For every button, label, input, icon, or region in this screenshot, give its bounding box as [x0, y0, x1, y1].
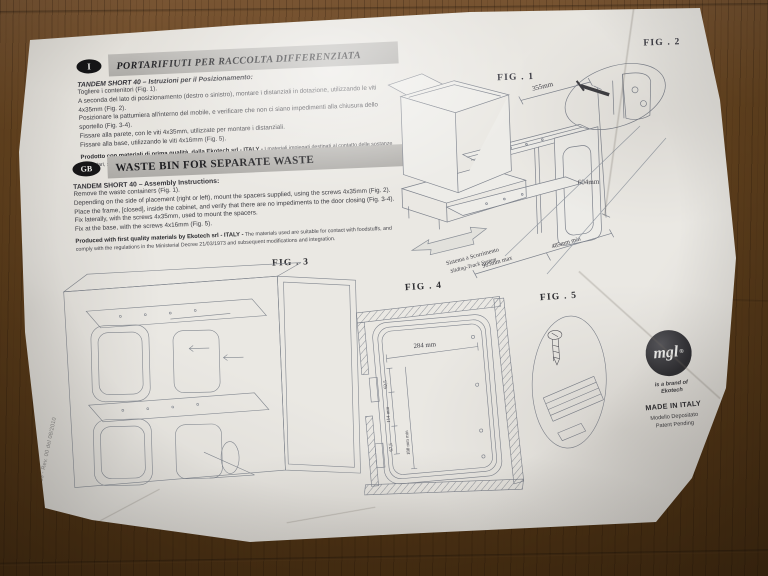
fig5-detail-oval: [530, 315, 609, 450]
registered-mark: ®: [679, 349, 684, 355]
instruction-sheet: I PORTARIFIUTI PER RACCOLTA DIFFERENZIAT…: [0, 0, 768, 576]
fig3-frame-lower: [88, 393, 270, 487]
fig3-frame-upper: [86, 299, 269, 403]
mgl-logo-text: mgl: [653, 343, 679, 363]
fig3-drawing: [49, 258, 373, 498]
fig4-wall-left-lower: [366, 416, 379, 486]
fig5-base-bracket: [557, 423, 586, 441]
italian-title: PORTARIFIUTI PER RACCOLTA DIFFERENZIATA: [116, 50, 361, 72]
english-title: WASTE BIN FOR SEPARATE WASTE: [115, 154, 314, 174]
fig5-rails: [542, 376, 605, 422]
slide-direction-arrow: [411, 227, 487, 256]
fig3-cabinet-front: [63, 276, 285, 488]
fig4-wall-bottom: [363, 471, 524, 503]
fig1-dim-height: 604mm: [578, 178, 600, 187]
photo-of-instruction-leaflet: I PORTARIFIUTI PER RACCOLTA DIFFERENZIAT…: [0, 0, 768, 576]
fig4-frame-outline: [371, 313, 503, 485]
paper-crease: [287, 506, 376, 524]
fig4-wall-left-upper: [357, 322, 369, 374]
language-badge-italy: I: [76, 59, 102, 74]
fig4-drawing: 284 mm 62,5 114 mm 67,5 180 mm min: [347, 285, 532, 507]
fig1-dim-width: 355mm: [531, 80, 554, 93]
fig4-dim-c: 67,5: [389, 442, 395, 451]
fig2-label: FIG . 2: [643, 37, 680, 48]
fig4-dim-a: 62,5: [383, 379, 389, 388]
fig2-detail-oval: [556, 51, 674, 142]
fig4-dim-b: 114 mm: [386, 406, 392, 422]
fig1-waste-container: [388, 71, 512, 195]
brand-block: mgl® is a brand of Ekotech MADE IN ITALY…: [608, 325, 734, 435]
wood-plank-seam: [0, 549, 768, 565]
section-english: GB WASTE BIN FOR SEPARATE WASTE TANDEM S…: [72, 144, 410, 254]
fig1-label: FIG . 1: [497, 72, 534, 83]
fig4-dimension-lines: [385, 343, 488, 471]
mgl-logo: mgl®: [644, 328, 694, 378]
fig5-screw-icon: [548, 330, 564, 365]
language-badge-gb: GB: [72, 160, 101, 176]
fig4-dim-width: 284 mm: [413, 341, 437, 350]
fig2-drawing: FIG . 2: [551, 27, 710, 152]
fig2-screw-icon: [581, 85, 609, 96]
